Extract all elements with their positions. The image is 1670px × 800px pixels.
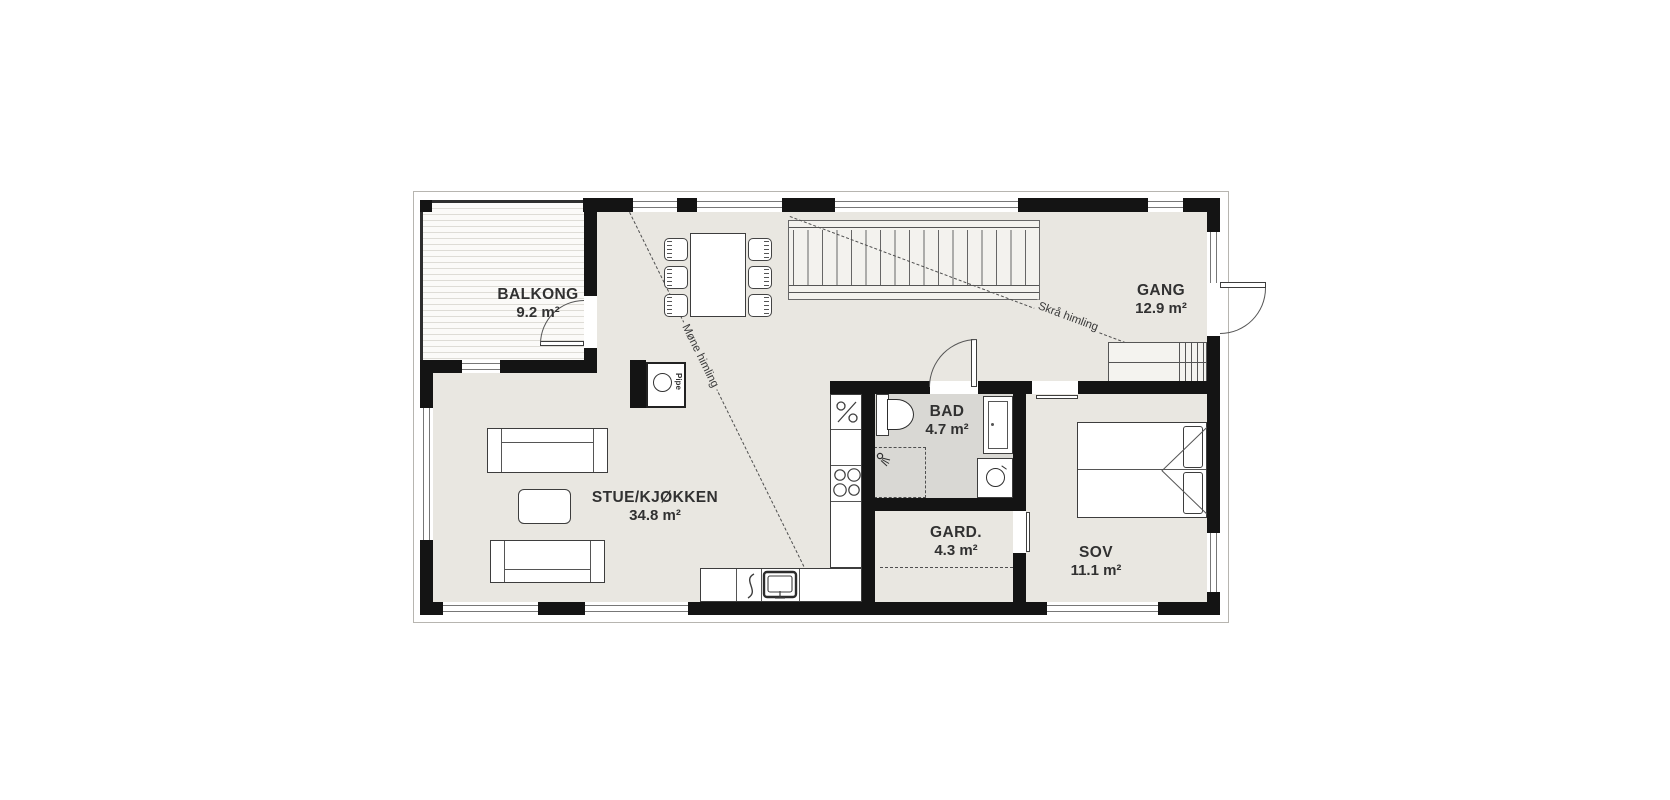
window bbox=[462, 360, 500, 373]
room-area: 4.3 m² bbox=[930, 542, 982, 560]
kitchen-counter-tall bbox=[830, 394, 862, 568]
chimney-label: Pipe bbox=[674, 373, 683, 390]
dining-chair bbox=[748, 294, 772, 317]
room-name: GANG bbox=[1135, 282, 1187, 300]
room-area: 12.9 m² bbox=[1135, 300, 1187, 318]
window bbox=[420, 408, 433, 540]
chimney-flue-icon bbox=[653, 373, 672, 392]
window bbox=[697, 198, 782, 212]
room-label-balkong: BALKONG 9.2 m² bbox=[497, 286, 578, 322]
stove-burners-icon bbox=[831, 465, 863, 501]
room-name: GARD. bbox=[930, 524, 982, 542]
window bbox=[1047, 602, 1158, 615]
kitchen-counter-bottom bbox=[700, 568, 862, 602]
room-label-gang: GANG 12.9 m² bbox=[1135, 282, 1187, 318]
window bbox=[1148, 198, 1183, 212]
wall-stub bbox=[630, 360, 646, 408]
wall bbox=[688, 602, 1047, 615]
room-name: BAD bbox=[925, 403, 968, 421]
dining-chair bbox=[664, 294, 688, 317]
chimney: Pipe bbox=[646, 362, 686, 408]
wardrobe-door-leaf bbox=[1026, 512, 1030, 552]
window bbox=[1207, 232, 1220, 283]
dining-table bbox=[690, 233, 746, 317]
washing-machine-icon bbox=[977, 458, 1013, 498]
stair-bottom-rail bbox=[789, 285, 1039, 286]
window bbox=[443, 602, 538, 615]
room-label-stue-kjokken: STUE/KJØKKEN 34.8 m² bbox=[592, 489, 718, 525]
kitchen-sink-icon bbox=[761, 569, 799, 603]
bedroom-door-leaf bbox=[1036, 395, 1078, 399]
wall bbox=[1018, 198, 1148, 212]
window bbox=[835, 198, 1018, 212]
wall bbox=[1207, 336, 1220, 533]
room-area: 34.8 m² bbox=[592, 507, 718, 525]
sofa bbox=[490, 540, 605, 583]
dining-chair bbox=[748, 266, 772, 289]
stair-top-rail bbox=[789, 227, 1039, 228]
shower-head-icon bbox=[876, 451, 894, 469]
balcony-corner-post bbox=[420, 200, 432, 212]
room-name: STUE/KJØKKEN bbox=[592, 489, 718, 507]
wall bbox=[584, 348, 597, 373]
wall bbox=[538, 602, 585, 615]
wall bbox=[677, 198, 697, 212]
dining-chair bbox=[664, 266, 688, 289]
coffee-table bbox=[518, 489, 571, 524]
sofa bbox=[487, 428, 608, 473]
wall bbox=[1158, 602, 1220, 615]
dishwasher-icon bbox=[831, 395, 863, 429]
room-area: 4.7 m² bbox=[925, 421, 968, 439]
wardrobe-door bbox=[1013, 511, 1026, 553]
dining-chair bbox=[664, 238, 688, 261]
wall bbox=[420, 360, 462, 373]
window bbox=[1207, 533, 1220, 592]
wall bbox=[1078, 381, 1207, 394]
wall bbox=[1013, 381, 1032, 394]
wall bbox=[1013, 553, 1026, 602]
stair-bottom-rail2 bbox=[789, 292, 1039, 293]
room-label-bad: BAD 4.7 m² bbox=[925, 403, 968, 439]
room-area: 9.2 m² bbox=[497, 304, 578, 322]
room-name: BALKONG bbox=[497, 286, 578, 304]
stair-treads bbox=[793, 230, 1035, 285]
wall bbox=[1013, 394, 1026, 511]
dining-chair bbox=[748, 238, 772, 261]
kitchen-s-symbol-icon bbox=[737, 569, 762, 603]
room-area: 11.1 m² bbox=[1071, 562, 1122, 580]
wall bbox=[1207, 198, 1220, 232]
gard-ceiling-dash bbox=[880, 567, 1013, 568]
window bbox=[585, 602, 688, 615]
room-name: SOV bbox=[1071, 544, 1122, 562]
wall bbox=[420, 373, 433, 408]
wall bbox=[978, 381, 1013, 394]
entry-door bbox=[1207, 283, 1220, 336]
wardrobe-closet bbox=[1108, 342, 1207, 382]
bedroom-door bbox=[1032, 381, 1078, 394]
room-label-sov: SOV 11.1 m² bbox=[1071, 544, 1122, 580]
wall bbox=[782, 198, 835, 212]
balcony-door bbox=[584, 296, 597, 348]
staircase bbox=[788, 220, 1040, 300]
wall bbox=[420, 602, 443, 615]
wall bbox=[500, 360, 597, 373]
window bbox=[633, 198, 677, 212]
room-label-gard: GARD. 4.3 m² bbox=[930, 524, 982, 560]
wall bbox=[584, 198, 597, 296]
entry-door-swing bbox=[1220, 288, 1266, 334]
bathroom-cabinet bbox=[983, 396, 1013, 454]
wall bbox=[862, 381, 875, 602]
wall bbox=[875, 498, 1013, 511]
wall bbox=[420, 540, 433, 602]
floor-plan: Møne himling Skrå himling bbox=[0, 0, 1670, 800]
wall bbox=[830, 381, 930, 394]
